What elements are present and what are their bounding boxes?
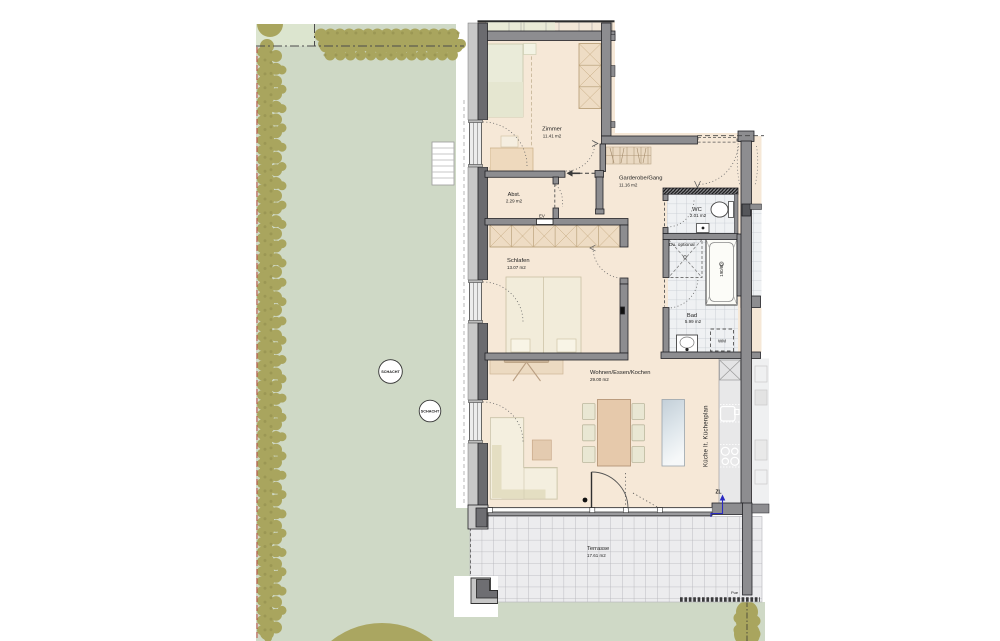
svg-text:Abst.: Abst. bbox=[508, 192, 521, 198]
svg-text:EV: EV bbox=[539, 214, 545, 219]
svg-text:13.07 m2: 13.07 m2 bbox=[507, 265, 526, 270]
svg-text:WM: WM bbox=[718, 339, 726, 344]
svg-text:5.99 m2: 5.99 m2 bbox=[685, 319, 702, 324]
svg-text:SCHACHT: SCHACHT bbox=[381, 370, 400, 374]
svg-text:Du. optional: Du. optional bbox=[669, 242, 695, 248]
svg-text:Schlafen: Schlafen bbox=[507, 258, 530, 264]
svg-text:2.01 m2: 2.01 m2 bbox=[690, 213, 707, 218]
svg-text:Zimmer: Zimmer bbox=[542, 127, 562, 133]
svg-text:2.29 m2: 2.29 m2 bbox=[506, 199, 523, 204]
svg-text:17.61 m2: 17.61 m2 bbox=[587, 553, 606, 558]
svg-text:Garderobe/Gang: Garderobe/Gang bbox=[619, 176, 663, 182]
svg-text:190/80: 190/80 bbox=[719, 263, 724, 277]
svg-text:11.41 m2: 11.41 m2 bbox=[543, 134, 562, 139]
svg-text:Küche lt. Küchenplan: Küche lt. Küchenplan bbox=[704, 405, 710, 467]
svg-text:Pue: Pue bbox=[731, 590, 739, 595]
svg-text:11.16 m2: 11.16 m2 bbox=[619, 183, 638, 188]
svg-text:ZL: ZL bbox=[716, 490, 722, 496]
svg-text:Wohnen/Essen/Kochen: Wohnen/Essen/Kochen bbox=[590, 370, 650, 376]
svg-text:29.00 m2: 29.00 m2 bbox=[590, 377, 609, 382]
svg-text:Terrasse: Terrasse bbox=[587, 546, 609, 552]
svg-text:SCHACHT: SCHACHT bbox=[421, 410, 440, 414]
